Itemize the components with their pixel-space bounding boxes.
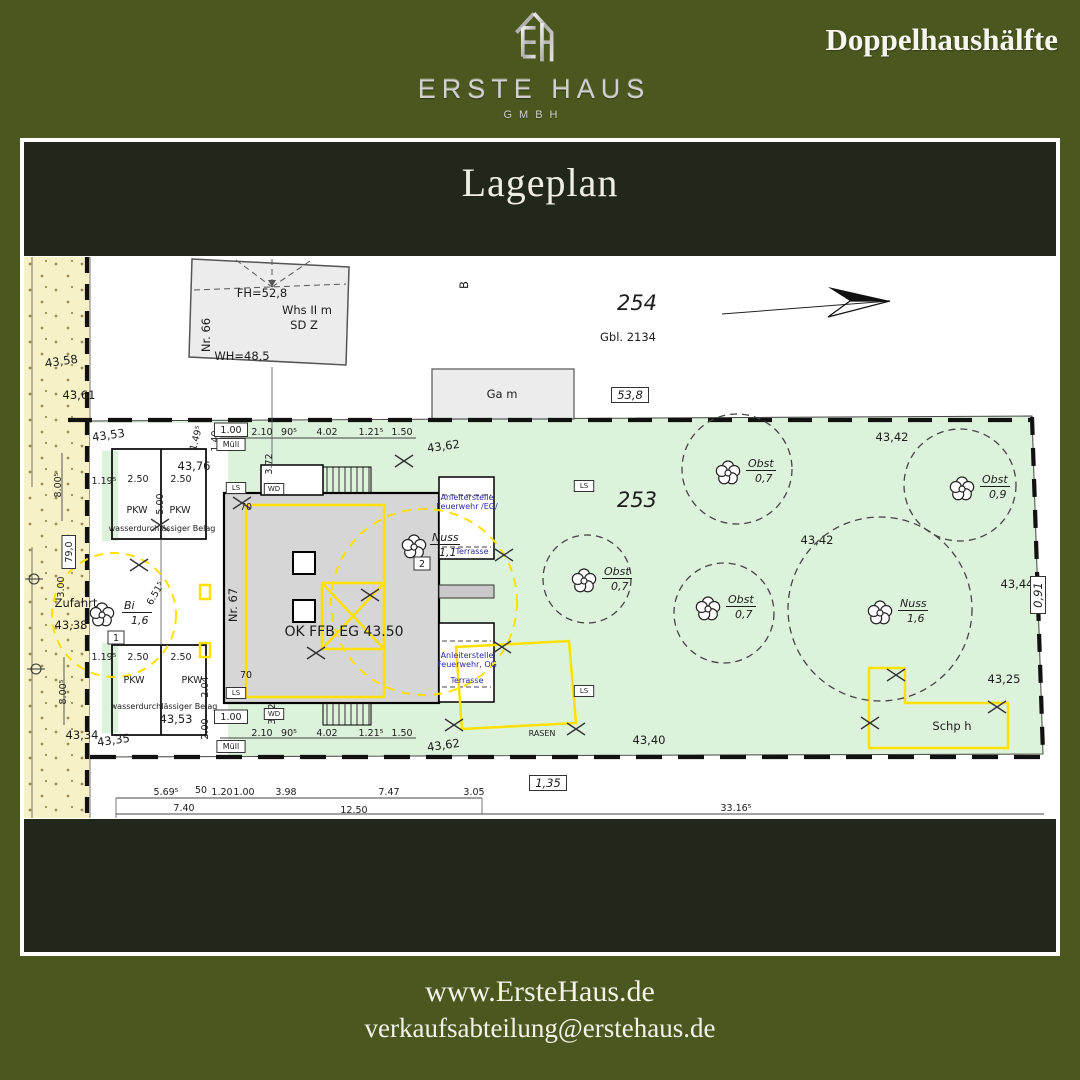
svg-text:254: 254 bbox=[617, 291, 657, 315]
plan-label: LS bbox=[574, 481, 593, 492]
svg-text:1.19⁵: 1.19⁵ bbox=[92, 476, 117, 487]
plan-label: Gbl. 2134 bbox=[600, 330, 656, 344]
svg-text:Gbl. 2134: Gbl. 2134 bbox=[600, 330, 656, 344]
website-link[interactable]: www.ErsteHaus.de bbox=[0, 972, 1080, 1011]
plan-label: 8.00⁵ bbox=[53, 472, 64, 497]
plan-label: 43,38 bbox=[55, 618, 88, 632]
svg-text:43,53: 43,53 bbox=[160, 712, 193, 726]
svg-text:0,7: 0,7 bbox=[755, 472, 773, 485]
plan-label: wasserdurchlässiger Belag bbox=[109, 524, 216, 533]
svg-text:2.50: 2.50 bbox=[170, 652, 191, 663]
svg-text:8.00⁵: 8.00⁵ bbox=[58, 679, 69, 704]
svg-text:43,38: 43,38 bbox=[55, 618, 88, 632]
plan-label: 43,34 bbox=[66, 728, 99, 742]
svg-text:43,42: 43,42 bbox=[876, 430, 909, 444]
svg-text:Obst: Obst bbox=[982, 473, 1008, 486]
svg-text:wasserdurchlässiger Belag: wasserdurchlässiger Belag bbox=[111, 702, 218, 711]
parking-space-label: PKW bbox=[123, 675, 145, 686]
svg-text:90⁵: 90⁵ bbox=[281, 427, 297, 438]
plan-label: 43,53 bbox=[160, 712, 193, 726]
plan-label: 3.72 bbox=[264, 453, 275, 474]
svg-text:Bi: Bi bbox=[124, 599, 135, 612]
svg-text:Anleiterstelle: Anleiterstelle bbox=[441, 651, 494, 660]
plan-label: 43,42 bbox=[801, 533, 834, 547]
plan-label: Feuerwehr /EG/ bbox=[436, 502, 498, 511]
svg-text:Feuerwehr, OG: Feuerwehr, OG bbox=[437, 660, 497, 669]
svg-text:2.04: 2.04 bbox=[200, 676, 211, 697]
plan-label: 2.50 bbox=[127, 474, 148, 485]
plan-label: 12.50 bbox=[340, 805, 367, 816]
svg-text:2.10: 2.10 bbox=[251, 728, 272, 739]
svg-text:B: B bbox=[457, 281, 471, 289]
svg-text:43,61: 43,61 bbox=[63, 388, 96, 402]
svg-text:50: 50 bbox=[195, 785, 207, 796]
svg-text:Nuss: Nuss bbox=[432, 531, 459, 544]
svg-text:7.47: 7.47 bbox=[378, 787, 399, 798]
svg-text:2.50: 2.50 bbox=[127, 652, 148, 663]
plan-label: 2.10 bbox=[251, 427, 272, 438]
plan-label: 2.50 bbox=[170, 474, 191, 485]
svg-text:FH=52,8: FH=52,8 bbox=[237, 286, 288, 300]
svg-text:1.00: 1.00 bbox=[220, 712, 241, 723]
email-link[interactable]: verkaufsabteilung@erstehaus.de bbox=[0, 1011, 1080, 1046]
svg-text:7.40: 7.40 bbox=[173, 803, 194, 814]
svg-text:Müll: Müll bbox=[223, 742, 239, 751]
plan-label: 3.98 bbox=[275, 787, 296, 798]
roof-opening bbox=[293, 552, 315, 574]
svg-text:LS: LS bbox=[232, 484, 241, 492]
plan-label: 53,8 bbox=[612, 388, 649, 403]
svg-text:253: 253 bbox=[617, 488, 657, 512]
stairs-top bbox=[323, 467, 371, 493]
svg-text:53,8: 53,8 bbox=[617, 388, 643, 402]
plan-label: 1.00 bbox=[233, 787, 254, 798]
roof-opening bbox=[293, 600, 315, 622]
svg-text:Whs II m: Whs II m bbox=[282, 303, 332, 317]
plan-label: 1.19⁵ bbox=[92, 652, 117, 663]
svg-text:Ga m: Ga m bbox=[487, 387, 518, 401]
plan-label: 43,44 bbox=[1001, 577, 1034, 591]
plan-label: 1.21⁵ bbox=[359, 728, 384, 739]
plan-label: 7.40 bbox=[173, 803, 194, 814]
svg-text:Müll: Müll bbox=[223, 440, 239, 449]
plan-label: 4.02 bbox=[316, 728, 337, 739]
property-type-label: Doppelhaushälfte bbox=[825, 22, 1058, 58]
parking-space-label: PKW bbox=[169, 505, 191, 516]
plan-label: B bbox=[457, 281, 471, 289]
svg-text:4.02: 4.02 bbox=[316, 427, 337, 438]
svg-text:RASEN: RASEN bbox=[529, 729, 556, 738]
plan-label: 3.05 bbox=[463, 787, 484, 798]
svg-text:43,34: 43,34 bbox=[66, 728, 99, 742]
plan-label: 43,42 bbox=[876, 430, 909, 444]
svg-text:8.00⁵: 8.00⁵ bbox=[53, 472, 64, 497]
svg-text:70: 70 bbox=[240, 670, 252, 681]
garage-label: Ga m bbox=[487, 387, 518, 401]
plan-label: 1.20 bbox=[211, 787, 232, 798]
plan-label: LS bbox=[226, 483, 245, 494]
svg-text:OK FFB EG 43.50: OK FFB EG 43.50 bbox=[284, 624, 403, 640]
svg-text:5.00: 5.00 bbox=[155, 493, 166, 514]
svg-text:1.20: 1.20 bbox=[211, 787, 232, 798]
svg-text:1.00: 1.00 bbox=[220, 425, 241, 436]
plan-label: Anleiterstelle bbox=[441, 651, 494, 660]
header: ERSTE HAUS GMBH Doppelhaushälfte bbox=[0, 0, 1080, 138]
svg-text:1.21⁵: 1.21⁵ bbox=[359, 728, 384, 739]
plan-label: 43,25 bbox=[988, 672, 1021, 686]
plan-label: 0,91 bbox=[1031, 577, 1046, 614]
svg-text:Feuerwehr /EG/: Feuerwehr /EG/ bbox=[436, 502, 498, 511]
plan-label: 7.47 bbox=[378, 787, 399, 798]
svg-text:WD: WD bbox=[268, 710, 280, 718]
svg-text:0,7: 0,7 bbox=[735, 608, 753, 621]
plan-label: LS bbox=[226, 688, 245, 699]
svg-text:1: 1 bbox=[113, 633, 119, 644]
svg-text:3.98: 3.98 bbox=[275, 787, 296, 798]
plan-label: 3.00 bbox=[56, 576, 67, 597]
plan-label: wasserdurchlässiger Belag bbox=[111, 702, 218, 711]
plan-label: 70 bbox=[240, 670, 252, 681]
svg-text:79,0: 79,0 bbox=[64, 541, 75, 562]
brand-logo: ERSTE HAUS GMBH bbox=[384, 6, 684, 121]
svg-text:LS: LS bbox=[580, 687, 589, 695]
svg-text:1,6: 1,6 bbox=[131, 614, 149, 627]
svg-text:Terrasse: Terrasse bbox=[449, 676, 483, 685]
plan-label: 1.50 bbox=[391, 427, 412, 438]
svg-text:43,40: 43,40 bbox=[633, 733, 666, 747]
plan-label: 33.16⁵ bbox=[720, 803, 751, 814]
svg-text:LS: LS bbox=[580, 482, 589, 490]
svg-text:0,9: 0,9 bbox=[989, 488, 1007, 501]
bottom-band bbox=[24, 819, 1056, 952]
svg-text:1.00: 1.00 bbox=[233, 787, 254, 798]
svg-text:WH=48,5: WH=48,5 bbox=[214, 349, 269, 363]
plan-label: 1.00 bbox=[215, 710, 248, 724]
svg-text:2.50: 2.50 bbox=[170, 474, 191, 485]
svg-text:90⁵: 90⁵ bbox=[281, 728, 297, 739]
plan-label: 8.00⁵ bbox=[58, 679, 69, 704]
svg-text:PKW: PKW bbox=[169, 505, 191, 516]
plan-title-band: Lageplan bbox=[24, 142, 1056, 256]
house-number-67: Nr. 67 bbox=[226, 588, 240, 622]
svg-text:PKW: PKW bbox=[126, 505, 148, 516]
plan-label: Whs II m bbox=[282, 303, 332, 317]
svg-text:2.50: 2.50 bbox=[127, 474, 148, 485]
svg-text:43,25: 43,25 bbox=[988, 672, 1021, 686]
plan-label: 5.69⁵ bbox=[154, 787, 179, 798]
svg-text:43,42: 43,42 bbox=[801, 533, 834, 547]
svg-text:wasserdurchlässiger Belag: wasserdurchlässiger Belag bbox=[109, 524, 216, 533]
svg-text:2: 2 bbox=[419, 559, 425, 570]
svg-text:SD Z: SD Z bbox=[290, 318, 318, 332]
brand-name: ERSTE HAUS bbox=[384, 74, 684, 105]
svg-text:12.50: 12.50 bbox=[340, 805, 367, 816]
plan-label: 90⁵ bbox=[281, 728, 297, 739]
svg-text:3.00: 3.00 bbox=[56, 576, 67, 597]
plan-label: Terrasse bbox=[449, 676, 483, 685]
svg-text:1.19⁵: 1.19⁵ bbox=[92, 652, 117, 663]
svg-text:1,35: 1,35 bbox=[535, 776, 561, 790]
brand-subtitle: GMBH bbox=[384, 109, 684, 121]
svg-text:43,76: 43,76 bbox=[178, 459, 211, 473]
svg-text:5.69⁵: 5.69⁵ bbox=[154, 787, 179, 798]
svg-text:1.50: 1.50 bbox=[391, 728, 412, 739]
parcel-number-253: 253 bbox=[617, 488, 657, 512]
svg-text:Obst: Obst bbox=[604, 565, 630, 578]
svg-text:Terrasse: Terrasse bbox=[454, 547, 488, 556]
svg-text:3.05: 3.05 bbox=[463, 787, 484, 798]
plan-label: 2.50 bbox=[170, 652, 191, 663]
plan-label: Terrasse bbox=[454, 547, 488, 556]
plan-label: Müll bbox=[217, 741, 245, 753]
svg-text:Obst: Obst bbox=[728, 593, 754, 606]
footer: www.ErsteHaus.de verkaufsabteilung@erste… bbox=[0, 972, 1080, 1046]
svg-text:3.72: 3.72 bbox=[264, 453, 275, 474]
plan-label: 1,35 bbox=[530, 776, 567, 791]
svg-text:0,91: 0,91 bbox=[1031, 582, 1045, 608]
plan-card: Lageplan bbox=[20, 138, 1060, 956]
plan-label: LS bbox=[574, 686, 593, 697]
shed-label: Schp h bbox=[932, 719, 971, 733]
floor-level-label: OK FFB EG 43.50 bbox=[284, 624, 403, 640]
plan-label: 50 bbox=[195, 785, 207, 796]
svg-text:Nuss: Nuss bbox=[900, 597, 927, 610]
plan-label: SD Z bbox=[290, 318, 318, 332]
house-logo-icon bbox=[510, 6, 558, 72]
svg-text:2.00: 2.00 bbox=[200, 718, 211, 739]
svg-text:1.21⁵: 1.21⁵ bbox=[359, 427, 384, 438]
plan-label: 5.00 bbox=[155, 493, 166, 514]
plan-label: 43,61 bbox=[63, 388, 96, 402]
plan-label: Feuerwehr, OG bbox=[437, 660, 497, 669]
plan-label: 1.21⁵ bbox=[359, 427, 384, 438]
plan-label: 2.00 bbox=[200, 718, 211, 739]
svg-text:PKW: PKW bbox=[123, 675, 145, 686]
plan-label: 2.04 bbox=[200, 676, 211, 697]
svg-text:43,44: 43,44 bbox=[1001, 577, 1034, 591]
plan-label: 43,76 bbox=[178, 459, 211, 473]
svg-text:1,1: 1,1 bbox=[439, 546, 457, 559]
svg-text:2.10: 2.10 bbox=[251, 427, 272, 438]
plan-label: 1.19⁵ bbox=[92, 476, 117, 487]
plan-label: 4.02 bbox=[316, 427, 337, 438]
svg-text:Schp h: Schp h bbox=[932, 719, 971, 733]
plan-label: 2.50 bbox=[127, 652, 148, 663]
svg-text:4.02: 4.02 bbox=[316, 728, 337, 739]
stairs-bottom bbox=[323, 703, 371, 725]
plan-label: Anleiterstelle bbox=[441, 493, 494, 502]
svg-text:Nr. 67: Nr. 67 bbox=[226, 588, 240, 622]
svg-text:1.50: 1.50 bbox=[391, 427, 412, 438]
lawn-label: RASEN bbox=[529, 729, 556, 738]
plan-label: 79,0 bbox=[62, 536, 76, 569]
svg-text:0,7: 0,7 bbox=[611, 580, 629, 593]
plan-label: 90⁵ bbox=[281, 427, 297, 438]
svg-text:Anleiterstelle: Anleiterstelle bbox=[441, 493, 494, 502]
plan-label: 1.50 bbox=[391, 728, 412, 739]
parcel-number-254: 254 bbox=[617, 291, 657, 315]
svg-text:1,6: 1,6 bbox=[907, 612, 925, 625]
svg-text:33.16⁵: 33.16⁵ bbox=[720, 803, 751, 814]
plan-label: Müll bbox=[217, 439, 245, 451]
house-number-66: Nr. 66 bbox=[199, 318, 213, 352]
svg-text:Nr. 66: Nr. 66 bbox=[199, 318, 213, 352]
terrace-divider bbox=[439, 585, 494, 598]
plan-label: 43,40 bbox=[633, 733, 666, 747]
plan-label: 2.10 bbox=[251, 728, 272, 739]
svg-text:WD: WD bbox=[268, 485, 280, 493]
plan-title: Lageplan bbox=[462, 159, 619, 206]
plan-label: WD bbox=[264, 709, 283, 720]
plan-label: WH=48,5 bbox=[214, 349, 269, 363]
site-plan: FH=52,8Nr. 66Whs II mSD ZWH=48,5B254Gbl.… bbox=[24, 256, 1056, 819]
ridge-height-label: FH=52,8 bbox=[237, 286, 288, 300]
plan-label: 1.00 bbox=[215, 423, 248, 437]
parking-space-label: PKW bbox=[126, 505, 148, 516]
svg-text:LS: LS bbox=[232, 689, 241, 697]
plan-label: WD bbox=[264, 484, 283, 495]
svg-text:Obst: Obst bbox=[748, 457, 774, 470]
